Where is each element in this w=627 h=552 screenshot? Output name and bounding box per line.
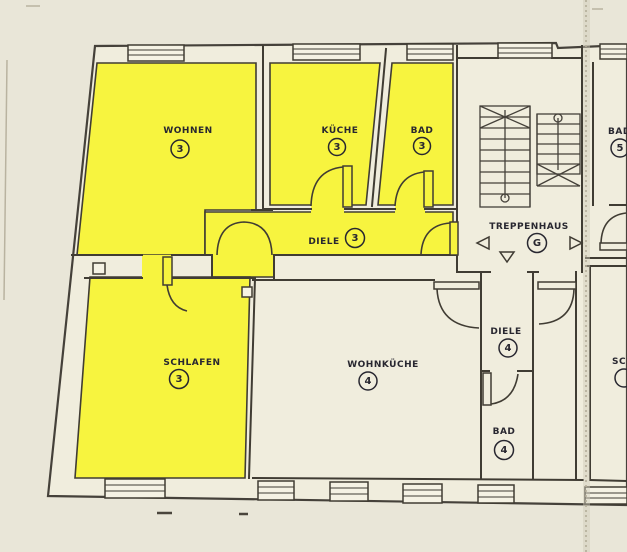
unit-number: 5 [617,143,624,154]
room-schlafen [75,277,250,478]
door-leaf-bad-5 [600,243,627,250]
window [407,44,453,60]
unit-number: 3 [419,141,426,152]
window [498,43,552,58]
window [293,44,360,60]
room-label: TREPPENHAUS [489,222,569,232]
window [258,481,294,500]
window [478,485,514,503]
window [600,44,627,59]
room-label: SCH [612,357,627,367]
room-label: WOHNKÜCHE [347,359,419,370]
room-label: BAD [608,127,627,137]
unit-number: 3 [352,233,359,244]
doorway-kueche [311,203,344,214]
door-leaf-kueche [343,166,352,207]
room-label: DIELE [490,327,521,337]
door-leaf-apartment-3-entrance [450,222,458,255]
unit-number: 3 [176,374,183,385]
door-leaf-schlafen [163,257,172,285]
window [330,482,368,501]
door-leaf-apartment-5-entrance [538,282,576,289]
vent-square [242,287,252,297]
room-label: BAD [411,126,434,136]
unit-number: 4 [365,376,372,387]
window [105,479,165,498]
room-label: KÜCHE [322,125,359,136]
room-label: SCHLAFEN [163,358,220,368]
door-leaf-wohnkueche [434,282,479,289]
window [585,487,627,504]
floor-plan-drawing: WOHNEN 3 KÜCHE 3 BAD 3 DIELE 3 SCHLAFEN … [0,0,627,552]
doorway-bad-3 [395,203,425,214]
door-leaf-bad-4 [483,373,491,405]
unit-number: 3 [177,144,184,155]
room-label: WOHNEN [163,126,212,136]
unit-number: 3 [334,142,341,153]
unit-number: 4 [501,445,508,456]
door-leaf-bad-3 [424,171,433,207]
room-label: BAD [493,427,516,437]
unit-number: G [533,238,541,249]
room-label: DIELE [308,237,339,247]
vent-square [93,263,105,274]
window [128,45,184,61]
floor-plan-page: WOHNEN 3 KÜCHE 3 BAD 3 DIELE 3 SCHLAFEN … [0,0,627,552]
unit-number: 4 [505,343,512,354]
window [403,484,442,503]
